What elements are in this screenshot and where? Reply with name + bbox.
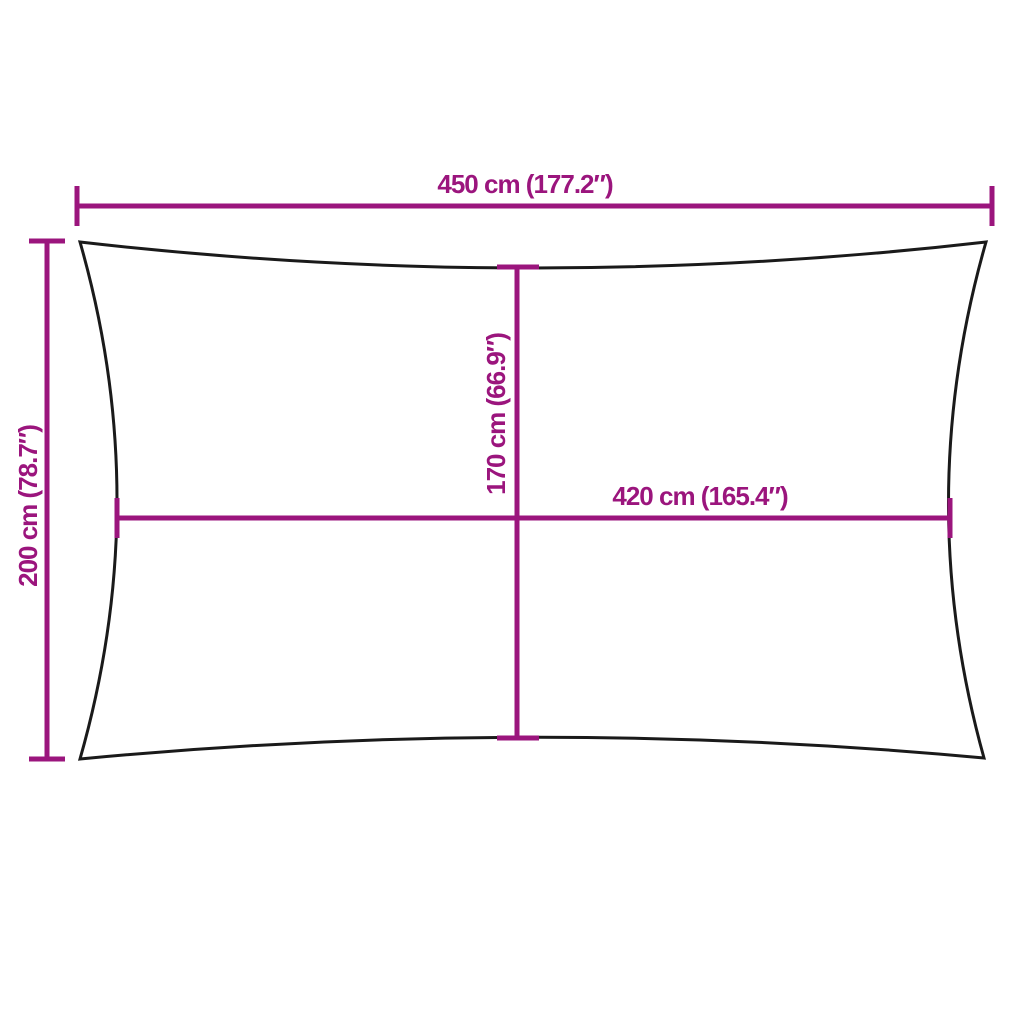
top-width-label: 450 cm (177.2″): [437, 171, 612, 197]
diagram-graphics: [0, 0, 1024, 1024]
left-height-label: 200 cm (78.7″): [15, 425, 41, 587]
center-width-dimension-line: [117, 498, 950, 538]
product-dimension-diagram: 450 cm (177.2″) 200 cm (78.7″) 170 cm (6…: [0, 0, 1024, 1024]
center-height-label: 170 cm (66.9″): [483, 333, 509, 495]
sail-outline-shape: [80, 242, 986, 759]
center-width-label: 420 cm (165.4″): [612, 483, 787, 509]
